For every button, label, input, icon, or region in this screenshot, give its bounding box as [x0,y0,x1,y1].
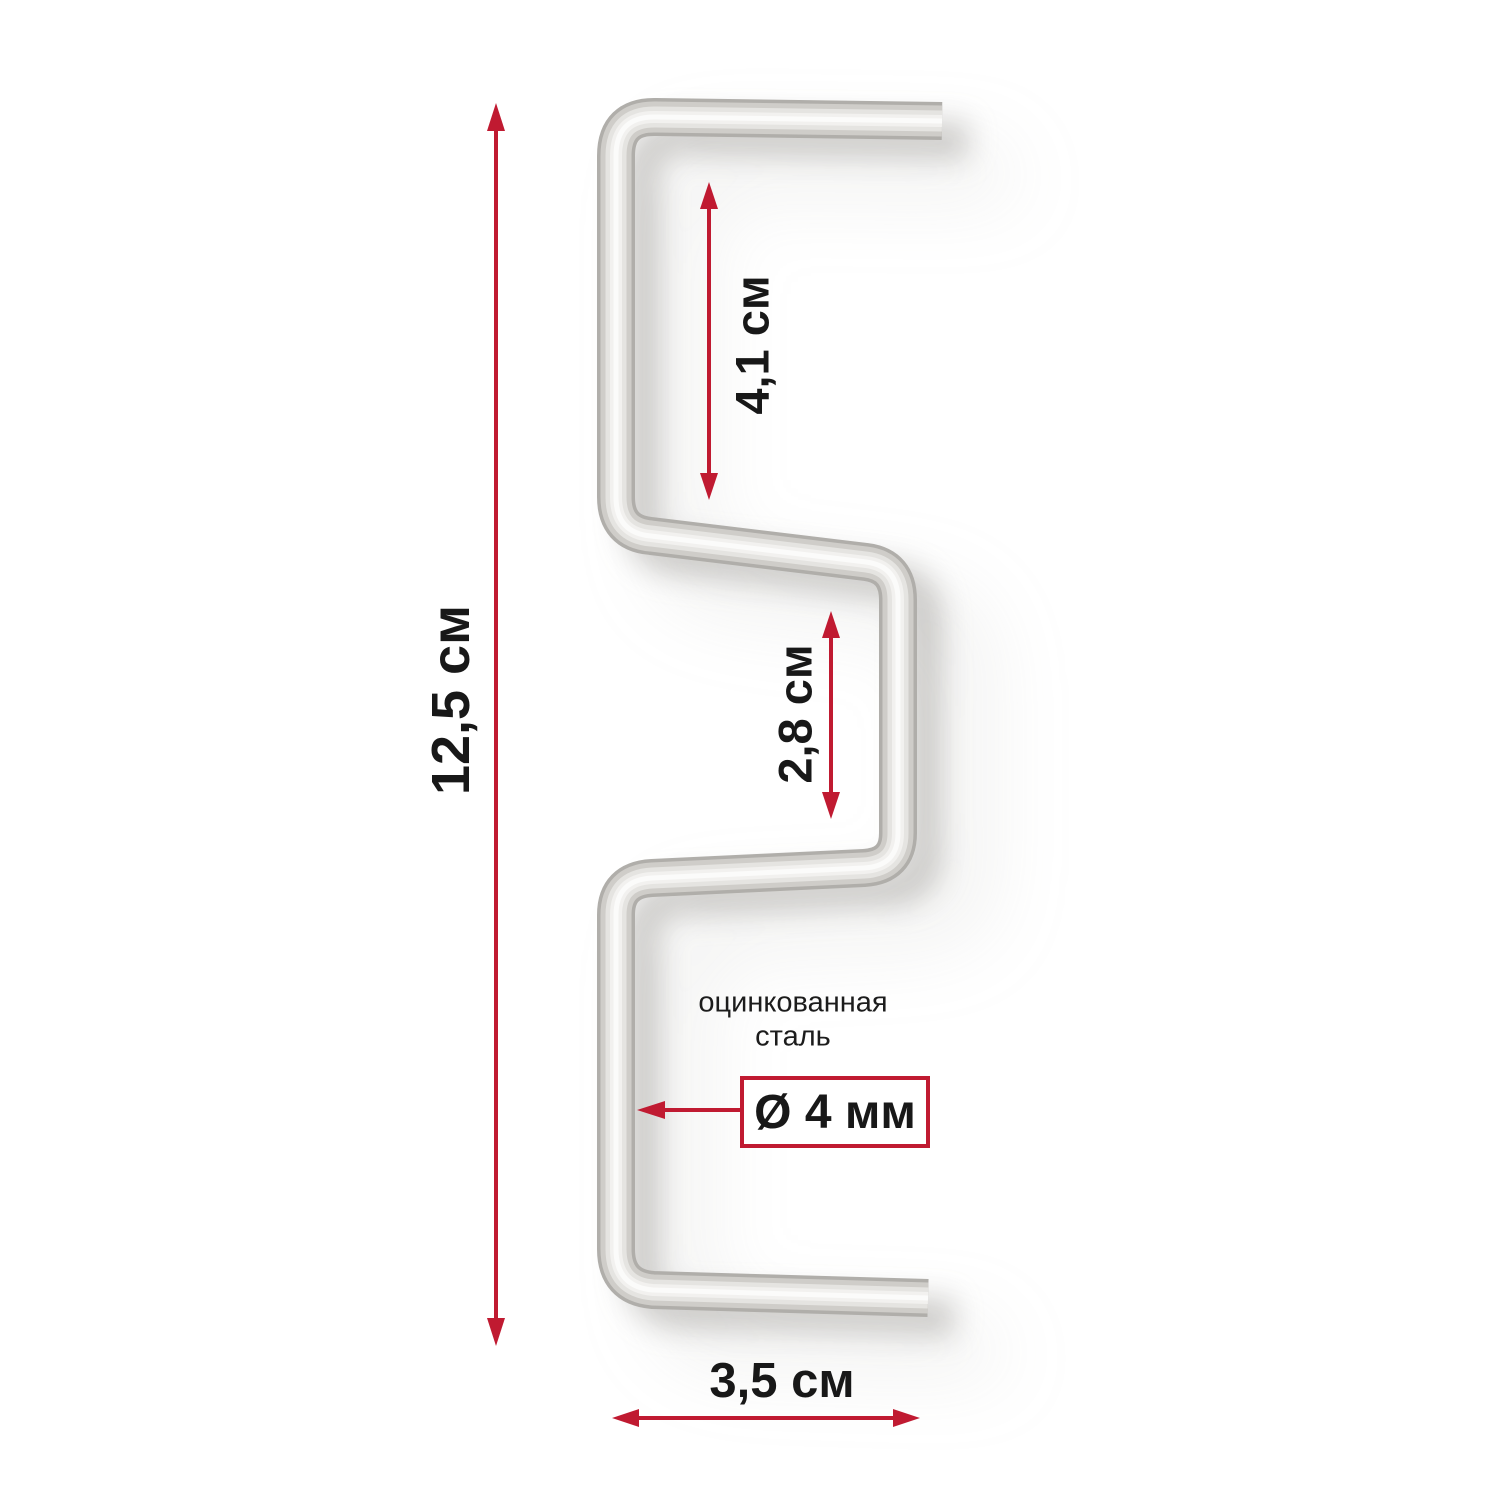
total-height-dimension-arrow [487,103,505,1346]
diameter-callout-arrow [637,1101,742,1119]
product-dimension-diagram: 12,5 см 4,1 см 2,8 см 3,5 см оцинкованна… [0,0,1500,1500]
upper-gap-dimension-arrow [700,182,718,500]
middle-gap-label: 2,8 см [768,644,823,783]
diameter-label: Ø 4 мм [754,1085,916,1140]
bottom-width-label: 3,5 см [709,1353,854,1409]
total-height-label: 12,5 см [420,605,482,795]
diagram-graphics [0,0,1500,1500]
bottom-width-dimension-arrow [612,1409,920,1427]
material-label: оцинкованная сталь [698,986,887,1053]
material-label-line1: оцинкованная [698,986,887,1020]
upper-gap-label: 4,1 см [725,275,780,414]
material-label-line2: сталь [698,1020,887,1054]
middle-gap-dimension-arrow [822,611,840,819]
diameter-badge: Ø 4 мм [740,1076,930,1148]
